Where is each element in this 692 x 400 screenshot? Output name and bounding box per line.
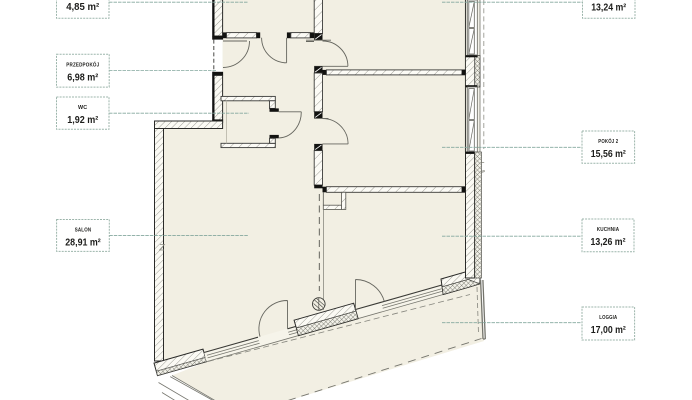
svg-text:1,92 m²: 1,92 m²: [67, 115, 99, 126]
svg-text:LOGGIA: LOGGIA: [599, 315, 617, 321]
svg-text:PRZEDPOKÓJ: PRZEDPOKÓJ: [66, 61, 99, 69]
svg-text:6,98 m²: 6,98 m²: [67, 72, 99, 83]
svg-text:15,56 m²: 15,56 m²: [591, 149, 627, 160]
svg-text:SALON: SALON: [75, 228, 92, 234]
svg-text:KUCHNIA: KUCHNIA: [597, 227, 620, 233]
svg-text:17,00 m²: 17,00 m²: [591, 325, 627, 336]
svg-text:4,85 m²: 4,85 m²: [66, 2, 100, 13]
svg-text:13,24 m²: 13,24 m²: [591, 3, 627, 14]
svg-text:13,26 m²: 13,26 m²: [591, 237, 627, 248]
svg-text:POKÓJ 2: POKÓJ 2: [598, 137, 618, 145]
svg-text:WC: WC: [78, 105, 87, 111]
svg-text:28,91 m²: 28,91 m²: [65, 237, 101, 248]
